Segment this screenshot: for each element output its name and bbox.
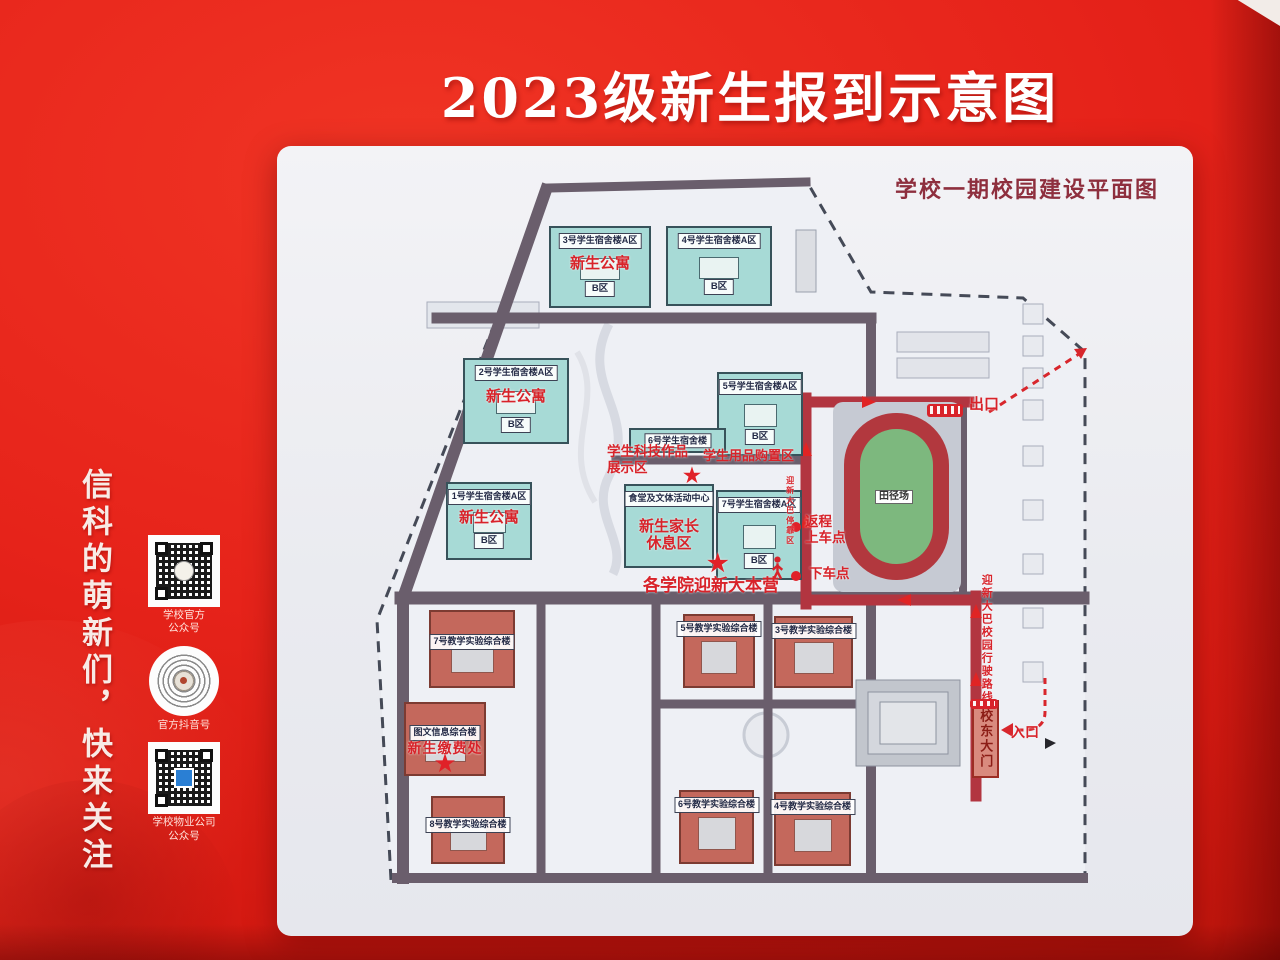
library-star-icon: ★ (433, 750, 456, 776)
supplies-label: 学生用品购置区 (703, 448, 794, 464)
walker (771, 556, 784, 585)
drop-off-dot (791, 571, 801, 581)
qr-school-official-code-icon (151, 538, 217, 604)
east-gate-bus (970, 699, 998, 709)
track-field-label: 田径场 (875, 490, 913, 504)
library-label: 图文信息综合楼 (409, 725, 480, 741)
building-teach-8: 8号教学实验综合楼 (431, 796, 505, 864)
dorm-5-zone-b-label: B区 (745, 429, 775, 445)
map-sheet: 学校一期校园建设平面图 (277, 146, 1193, 936)
dorm-3-label: 3号学生宿舍楼A区 (559, 233, 642, 249)
building-teach-4: 4号教学实验综合楼 (774, 792, 851, 866)
building-dorm-5: 5号学生宿舍楼A区B区 (717, 372, 803, 456)
dorm-5-label: 5号学生宿舍楼A区 (719, 379, 802, 395)
sci-display-star: ★ (683, 466, 701, 486)
return-boarding-label: 返程 上车点 (805, 514, 846, 546)
qr-property-label: 学校物业公司 公众号 (153, 816, 216, 842)
canteen-label: 食堂及文体活动中心 (624, 491, 713, 507)
poster-right-shade (1210, 0, 1280, 960)
teach-5-label: 5号教学实验综合楼 (676, 621, 761, 637)
building-teach-3: 3号教学实验综合楼 (774, 616, 853, 688)
qr-douyin-label: 官方抖音号 (158, 719, 211, 732)
teach-7-label: 7号教学实验综合楼 (429, 634, 514, 650)
base-camp-label: 各学院迎新大本营 (643, 576, 779, 596)
building-dorm-2: 2号学生宿舍楼A区新生公寓B区 (463, 358, 569, 444)
teach-8-label: 8号教学实验综合楼 (425, 817, 510, 833)
teach-6-label: 6号教学实验综合楼 (674, 797, 759, 813)
entrance-label: 入口 (1011, 724, 1039, 741)
building-dorm-3: 3号学生宿舍楼A区新生公寓B区 (549, 226, 651, 308)
building-dorm-4: 4号学生宿舍楼A区B区 (666, 226, 772, 306)
exit-label: 出口 (969, 396, 999, 414)
dorm-1-label: 1号学生宿舍楼A区 (448, 489, 531, 505)
base-camp-star: ★ (707, 552, 729, 576)
drop-off-label: 下车点 (809, 566, 850, 582)
poster: 2023级新生报到示意图 信科的萌新们，快来关注 学校官方 公众号官方抖音号学校… (0, 0, 1280, 960)
dorm-1-red-label: 新生公寓 (448, 509, 530, 526)
dorm-7-zone-b-label: B区 (744, 553, 774, 569)
slogan-vertical: 信科的萌新们，快来关注 (72, 468, 117, 928)
dorm-1-zone-b-label: B区 (474, 533, 504, 549)
dorm-4-zone-b-label: B区 (704, 279, 734, 295)
building-canteen: 食堂及文体活动中心新生家长 休息区 (624, 484, 714, 568)
dorm-2-red-label: 新生公寓 (465, 388, 567, 405)
building-teach-5: 5号教学实验综合楼 (683, 614, 755, 688)
building-library: 图文信息综合楼新生缴费处★ (404, 702, 486, 776)
qr-panel: 学校官方 公众号官方抖音号学校物业公司 公众号 (140, 538, 228, 843)
qr-property-code-icon (151, 745, 217, 811)
qr-douyin-code-icon (151, 648, 217, 714)
admin-building (856, 680, 960, 766)
bus-stop-strip-label: 迎新大巴停靠区 (785, 476, 795, 546)
qr-school-official: 学校官方 公众号 (151, 538, 217, 635)
building-dorm-1: 1号学生宿舍楼A区新生公寓B区 (446, 482, 532, 560)
building-teach-6: 6号教学实验综合楼 (679, 790, 754, 864)
dorm-2-zone-b-label: B区 (501, 417, 531, 433)
qr-property: 学校物业公司 公众号 (151, 745, 217, 842)
dorm-2-label: 2号学生宿舍楼A区 (475, 365, 558, 381)
exit-bus (927, 404, 963, 417)
dorm-3-zone-b-label: B区 (585, 281, 615, 297)
teach-3-label: 3号教学实验综合楼 (771, 623, 856, 639)
canteen-red-label: 新生家长 休息区 (626, 518, 712, 553)
dorm-4-label: 4号学生宿舍楼A区 (678, 233, 761, 249)
poster-title: 2023级新生报到示意图 (400, 54, 1100, 133)
dorm-3-red-label: 新生公寓 (551, 255, 649, 272)
qr-school-official-label: 学校官方 公众号 (163, 609, 205, 635)
east-gate-box: 校东大门 (972, 700, 999, 778)
building-teach-7: 7号教学实验综合楼 (429, 610, 515, 688)
qr-douyin: 官方抖音号 (151, 648, 217, 732)
teach-4-label: 4号教学实验综合楼 (770, 799, 855, 815)
bus-route-label: 迎新大巴校园行驶路线 (979, 574, 992, 704)
sci-display-label: 学生科技作品 展示区 (607, 444, 688, 476)
